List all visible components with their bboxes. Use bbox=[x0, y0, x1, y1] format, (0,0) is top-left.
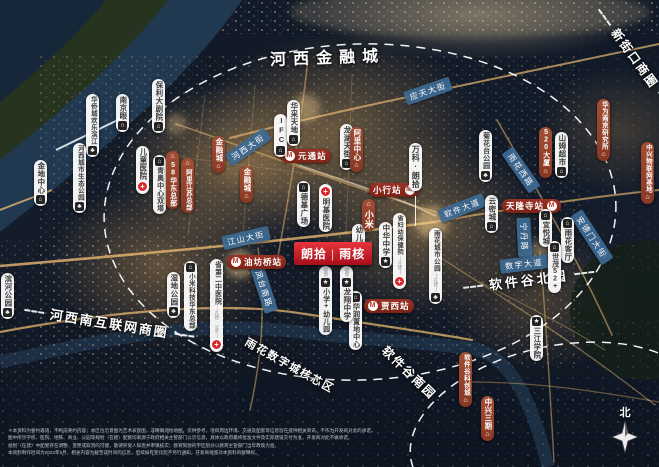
poi-yuhua-living-room: ⌂雨花客厅 bbox=[561, 217, 574, 263]
compass-star-icon bbox=[612, 421, 638, 453]
label-text: 青奥中心双塔 bbox=[155, 167, 163, 212]
label-text: 小米 bbox=[363, 210, 374, 229]
school-icon: ★ bbox=[342, 278, 351, 287]
label-text: 云密城 bbox=[487, 197, 496, 221]
building-icon: ⌂ bbox=[276, 146, 285, 155]
road-fengtai-south-road: 凤台南路 bbox=[250, 264, 278, 314]
building-icon: ⌂ bbox=[244, 193, 248, 201]
project-badge: 朗拾 | 雨核 bbox=[294, 242, 372, 265]
bag-icon: ⌂ bbox=[299, 183, 308, 192]
poi-zhonghua-middle-school: 中华中学★ bbox=[379, 222, 392, 268]
poi-longxiang-middle-school: 规划★龙翔中学 bbox=[340, 266, 353, 322]
road-hexi-street: 河西大街 bbox=[224, 128, 271, 167]
dash-line bbox=[463, 284, 483, 288]
corp-zte-iot-base: 中兴物联网基地⌂ bbox=[641, 142, 654, 204]
disclaimer-line: 规划（在建）中配套存在调整、变更或取消的可能，敬请买受人知悉并审慎核实；教育资源… bbox=[8, 442, 488, 449]
label-text: 华采天地 bbox=[289, 102, 298, 134]
label-text: 金融城 bbox=[242, 168, 251, 192]
label-text: 华为南京研究所 bbox=[600, 101, 608, 150]
poi-hexi-eco-park: 河西城市生态公园♣ bbox=[73, 143, 86, 213]
label-text: 山姆超市 bbox=[557, 134, 566, 166]
label-text: 贾西站 bbox=[381, 300, 410, 312]
poi-sanjiang-college: ★三江学院 bbox=[530, 315, 543, 361]
label-text: 软件大道 bbox=[443, 197, 482, 219]
bag-icon: ⌂ bbox=[557, 167, 566, 176]
label-text: 菊花台公园 bbox=[481, 132, 489, 170]
label-text: 保利大剧院 bbox=[154, 81, 163, 121]
poi-ifc: IFC⌂ bbox=[274, 114, 287, 157]
poi-shimao-52plus: ⌂世茂52+ bbox=[548, 241, 561, 293]
area-hexi-financial-city: 河西金融城 bbox=[270, 42, 386, 70]
location-map: 河西金融城新街口商圈河西南互联网商圈软件谷北园软件谷南园雨花数字城核芯区应天大街… bbox=[0, 0, 659, 467]
corp-xiaomi: ⌂小米 bbox=[362, 199, 375, 231]
label-text: 应天大街 bbox=[409, 81, 448, 102]
building-icon: ⌂ bbox=[216, 163, 220, 171]
metro-logo-icon: M bbox=[231, 257, 241, 267]
label-text: 华侨城欢乐滨江 bbox=[89, 96, 97, 145]
poi-sams-club: 山姆超市⌂ bbox=[555, 132, 568, 178]
label-text: 万科·朗拾 bbox=[411, 145, 420, 189]
park-icon: ♣ bbox=[169, 307, 178, 316]
bag-icon: ⌂ bbox=[563, 219, 572, 228]
bag-icon: ⌂ bbox=[550, 243, 559, 252]
vanke-langshi-leader-line bbox=[415, 196, 416, 226]
briefcase-icon: ⌂ bbox=[645, 194, 649, 202]
poi-huacai-tiandi: 华采天地⌂ bbox=[287, 100, 300, 146]
label-text: 宁丹路 bbox=[519, 223, 529, 252]
poi-yuhua-city-park: 雨花城市公园(在建)♣ bbox=[429, 228, 442, 304]
hospital-icon: + bbox=[320, 186, 331, 197]
label-text: 金地中心 bbox=[36, 162, 45, 194]
label-text: 中兴三期 bbox=[483, 398, 492, 430]
school-icon: ★ bbox=[321, 278, 330, 287]
tower-icon: ⌂ bbox=[155, 157, 164, 166]
park-icon: ♣ bbox=[75, 202, 84, 211]
poi-maternity-hospital: 省妇幼保健院(在建)+ bbox=[393, 213, 406, 289]
label-text: 中华中学 bbox=[381, 224, 390, 256]
poi-xiaomi-east-hq: ⌂小米科技华东总部 bbox=[184, 261, 197, 331]
park-icon: ♣ bbox=[481, 171, 490, 180]
road-yuhua-west-road: 雨花西路 bbox=[502, 146, 541, 193]
project-badge-right: 雨核 bbox=[339, 245, 365, 262]
corp-jinrongcheng-1: 金融城⌂ bbox=[212, 136, 225, 173]
briefcase-icon: ⌂ bbox=[186, 263, 195, 272]
label-text: 油坊桥站 bbox=[244, 256, 282, 268]
label-text: 中兴物联网基地 bbox=[644, 144, 652, 193]
label-text: 儿童医院 bbox=[138, 148, 147, 180]
dash-line bbox=[24, 308, 44, 313]
area-yuhua-digital-core: 雨花数字城核芯区 bbox=[242, 334, 337, 396]
metro-youfangqiao-station: M油坊桥站 bbox=[227, 255, 286, 269]
corp-huawei-nanjing-institute: 华为南京研究所⌂ bbox=[597, 99, 610, 161]
label-text: 小米科技华东总部 bbox=[187, 273, 195, 329]
poi-jindi-center: 金地中心⌂ bbox=[34, 160, 47, 206]
hospital-icon: + bbox=[394, 276, 405, 287]
label-text: 规划 bbox=[344, 268, 349, 277]
label-text: 滨河公园 bbox=[3, 275, 12, 307]
label-text: 数字大道 bbox=[505, 257, 544, 271]
corp-ali-jiangsu-hq: ⌂阿里江苏总部 bbox=[181, 158, 194, 213]
dash-line bbox=[574, 270, 594, 274]
briefcase-icon: ⌂ bbox=[170, 153, 174, 161]
area-software-valley-south: 软件谷南园 bbox=[378, 342, 440, 403]
dash-line bbox=[598, 8, 611, 25]
road-andemen-street: 安德门大街 bbox=[570, 209, 613, 265]
label-text: 阿里中心 bbox=[352, 129, 361, 161]
label-text: 河西金融城 bbox=[270, 42, 386, 70]
metro-tianlongsi-station: 天隆寺站M bbox=[502, 199, 561, 213]
corp-58-east-hq: ⌂58华东总部 bbox=[166, 151, 179, 209]
label-text: 雨花客厅 bbox=[563, 229, 572, 261]
poi-mingji-hospital: +明基医院 bbox=[319, 184, 332, 232]
road-ningdan-road: 宁丹路 bbox=[516, 217, 532, 256]
label-text: 湿地公园 bbox=[169, 274, 178, 306]
label-text: 三江学院 bbox=[532, 327, 541, 359]
building-icon: ⌂ bbox=[463, 397, 467, 405]
label-text: 天隆寺站 bbox=[506, 200, 544, 212]
poi-poly-grand-theatre: 保利大剧院⌂ bbox=[152, 79, 165, 133]
project-badge-left: 朗拾 bbox=[301, 245, 327, 262]
road-jiangshan-street: 江山大街 bbox=[221, 226, 271, 250]
label-text: 雨花城市公园 bbox=[432, 230, 440, 272]
school-icon: ★ bbox=[532, 317, 541, 326]
poi-youth-olympic-towers: ⌂青奥中心双塔 bbox=[153, 155, 166, 214]
label-text: 安德门大街 bbox=[575, 215, 608, 260]
poi-juhuatai-park: 菊花台公园♣ bbox=[479, 130, 492, 182]
road-software-avenue: 软件大道 bbox=[437, 193, 487, 223]
label-text: 明基医院 bbox=[321, 198, 330, 230]
label-text: 520大厦 bbox=[541, 129, 549, 167]
compass-north-label: 北 bbox=[620, 404, 631, 420]
label-text: 凤台南路 bbox=[254, 270, 274, 309]
label-text: 龙翔中学 bbox=[342, 288, 351, 320]
label-text: 阿里江苏总部 bbox=[184, 169, 192, 211]
label-text: 河西南互联网商圈 bbox=[49, 304, 171, 342]
label-text: (在建) bbox=[397, 256, 402, 275]
bag-icon: ⌂ bbox=[541, 211, 550, 220]
label-text: 软件谷科创城 bbox=[462, 354, 470, 396]
school-icon: ★ bbox=[381, 257, 390, 266]
park-icon: ♣ bbox=[88, 146, 97, 155]
label-text: 宜悦城 bbox=[541, 221, 550, 245]
park-icon: ♣ bbox=[431, 293, 440, 302]
building-icon: ⌂ bbox=[36, 195, 45, 204]
label-text: 规划 bbox=[323, 268, 328, 277]
metro-jiaxi-station: M贾西站 bbox=[364, 299, 414, 313]
corp-software-valley-kechuang: 软件谷科创城⌂ bbox=[459, 352, 472, 407]
metro-yuantong-station: M元通站 bbox=[281, 149, 331, 163]
building-icon: ⌂ bbox=[543, 168, 547, 176]
hospital-icon: + bbox=[211, 339, 222, 350]
label-text: (在建) bbox=[433, 273, 438, 292]
disclaimer-line: 图中所示学校、医院、地铁、商业、公园等规划（在建）配套均来源于政府相关主管部门公… bbox=[8, 434, 488, 441]
label-text: 元通站 bbox=[298, 150, 327, 162]
label-text: 雨花数字城核芯区 bbox=[242, 334, 337, 396]
corp-jinrongcheng-2: 金融城⌂ bbox=[240, 166, 253, 203]
label-text: 雨花西路 bbox=[506, 152, 535, 188]
poi-nanjing-eye: 南京眼∩ bbox=[116, 94, 129, 132]
label-text: 小学+幼儿园 bbox=[321, 288, 329, 333]
label-text: 新街口商圈 bbox=[608, 25, 659, 92]
label-text: 南京眼 bbox=[118, 96, 127, 120]
label-text: 金融城 bbox=[214, 138, 223, 162]
poi-wetland-park: 湿地公园♣ bbox=[167, 272, 180, 318]
building-icon: ⌂ bbox=[354, 162, 358, 170]
park-icon: ♣ bbox=[3, 308, 12, 317]
disclaimer-line: ＊本资料为要约邀请，不构成要约内容；本区位示意图为艺术表现图，非精确测绘地图，仅… bbox=[8, 427, 488, 434]
poi-oct-happy-riverside: 华侨城欢乐滨江♣ bbox=[86, 94, 99, 157]
label-text: 世茂52+ bbox=[550, 253, 558, 291]
road-yingtian-avenue: 应天大街 bbox=[403, 77, 453, 106]
label-text: 德基广场 bbox=[299, 193, 308, 225]
dash-line bbox=[175, 332, 195, 337]
label-text: 软件谷南园 bbox=[378, 342, 440, 403]
bridge-icon: ∩ bbox=[118, 121, 127, 130]
label-text: 省第二中医院 bbox=[212, 261, 220, 305]
briefcase-icon: ⌂ bbox=[601, 151, 605, 159]
poi-vanke-langshi: 万科·朗拾 bbox=[409, 143, 422, 191]
disclaimer: ＊本资料为要约邀请，不构成要约内容；本区位示意图为艺术表现图，非精确测绘地图，仅… bbox=[8, 427, 488, 456]
poi-yunmi-city: 云密城⌂ bbox=[485, 195, 498, 233]
label-text: 河西大街 bbox=[230, 132, 266, 161]
hospital-icon: + bbox=[137, 181, 148, 192]
area-xinjiekou-cbd: 新街口商圈 bbox=[592, 4, 659, 113]
label-text: 河西城市生态公园 bbox=[76, 145, 84, 201]
project-badge-divider: | bbox=[331, 247, 335, 261]
poi-deji-plaza: ⌂德基广场 bbox=[297, 181, 310, 227]
briefcase-icon: ⌂ bbox=[366, 201, 370, 209]
metro-logo-icon: M bbox=[368, 301, 378, 311]
disclaimer-line: 本资料制作时间为2023年6月，相关内容为截至该时间的信息，后续如有变化恕不另行… bbox=[8, 449, 488, 456]
poi-planned-primary-kindergarten: 规划★小学+幼儿园 bbox=[319, 266, 332, 335]
label-text: 小行站 bbox=[373, 184, 402, 196]
bag-icon: ⌂ bbox=[289, 135, 298, 144]
label-layer: 河西金融城新街口商圈河西南互联网商圈软件谷北园软件谷南园雨花数字城核芯区应天大街… bbox=[0, 0, 659, 467]
corp-ali-center: 阿里中心⌂ bbox=[350, 127, 363, 172]
theater-icon: ⌂ bbox=[154, 122, 163, 131]
label-text: 省妇幼保健院 bbox=[396, 215, 403, 255]
briefcase-icon: ⌂ bbox=[185, 160, 189, 168]
compass: 北 bbox=[612, 404, 638, 453]
building-icon: ⌂ bbox=[487, 222, 496, 231]
label-text: 江山大街 bbox=[226, 229, 265, 246]
poi-children-hospital: 儿童医院+ bbox=[136, 146, 149, 194]
label-text: 58华东总部 bbox=[168, 162, 176, 207]
label-text: (在建·公示) bbox=[214, 306, 219, 338]
poi-second-tcm-hospital: 省第二中医院(在建·公示)+ bbox=[210, 259, 223, 352]
poi-binhe-park: 滨河公园♣ bbox=[1, 273, 14, 319]
corp-520-tower: 520大厦⌂ bbox=[539, 127, 552, 178]
label-text: IFC bbox=[276, 116, 285, 145]
